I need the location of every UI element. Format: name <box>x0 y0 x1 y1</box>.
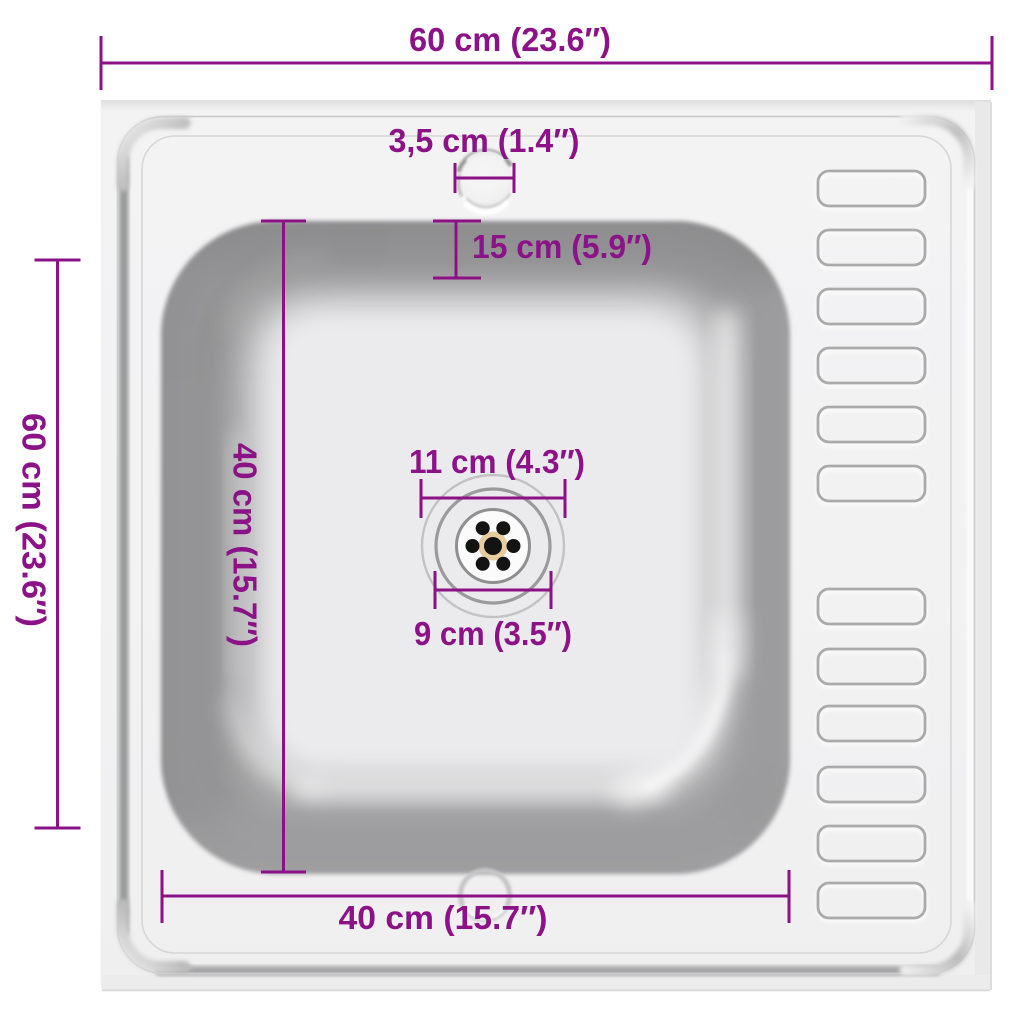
svg-text:3,5 cm (1.4″): 3,5 cm (1.4″) <box>389 122 580 159</box>
svg-text:60 cm (23.6″): 60 cm (23.6″) <box>409 21 611 58</box>
svg-text:40 cm (15.7″): 40 cm (15.7″) <box>227 443 264 647</box>
svg-text:60 cm (23.6″): 60 cm (23.6″) <box>16 413 53 627</box>
svg-text:11 cm (4.3″): 11 cm (4.3″) <box>409 443 585 480</box>
svg-text:15 cm (5.9″): 15 cm (5.9″) <box>472 228 652 265</box>
svg-text:40 cm (15.7″): 40 cm (15.7″) <box>339 899 548 936</box>
svg-text:9 cm (3.5″): 9 cm (3.5″) <box>414 615 572 652</box>
